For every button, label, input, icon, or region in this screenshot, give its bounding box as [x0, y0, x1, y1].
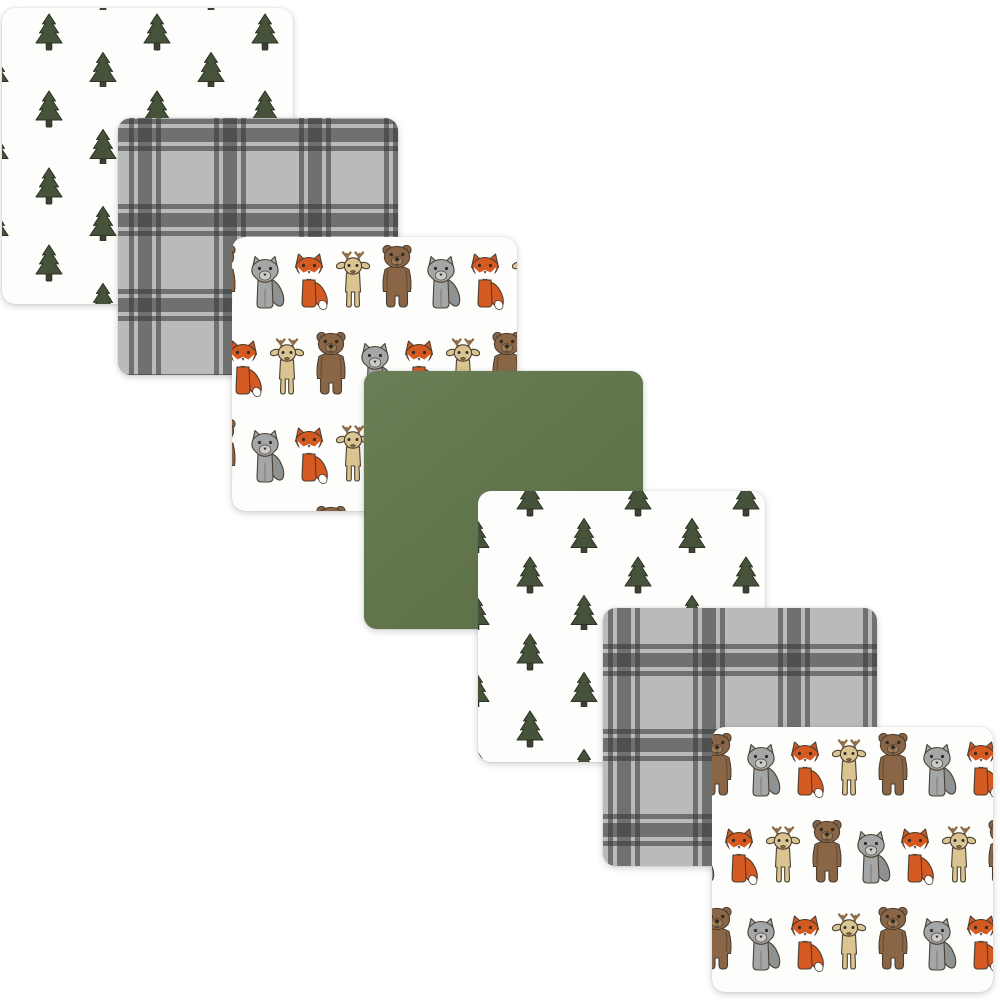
blanket-7-woodland-animals	[712, 727, 993, 992]
animal-pattern	[712, 727, 993, 992]
product-photo	[0, 0, 1000, 1000]
